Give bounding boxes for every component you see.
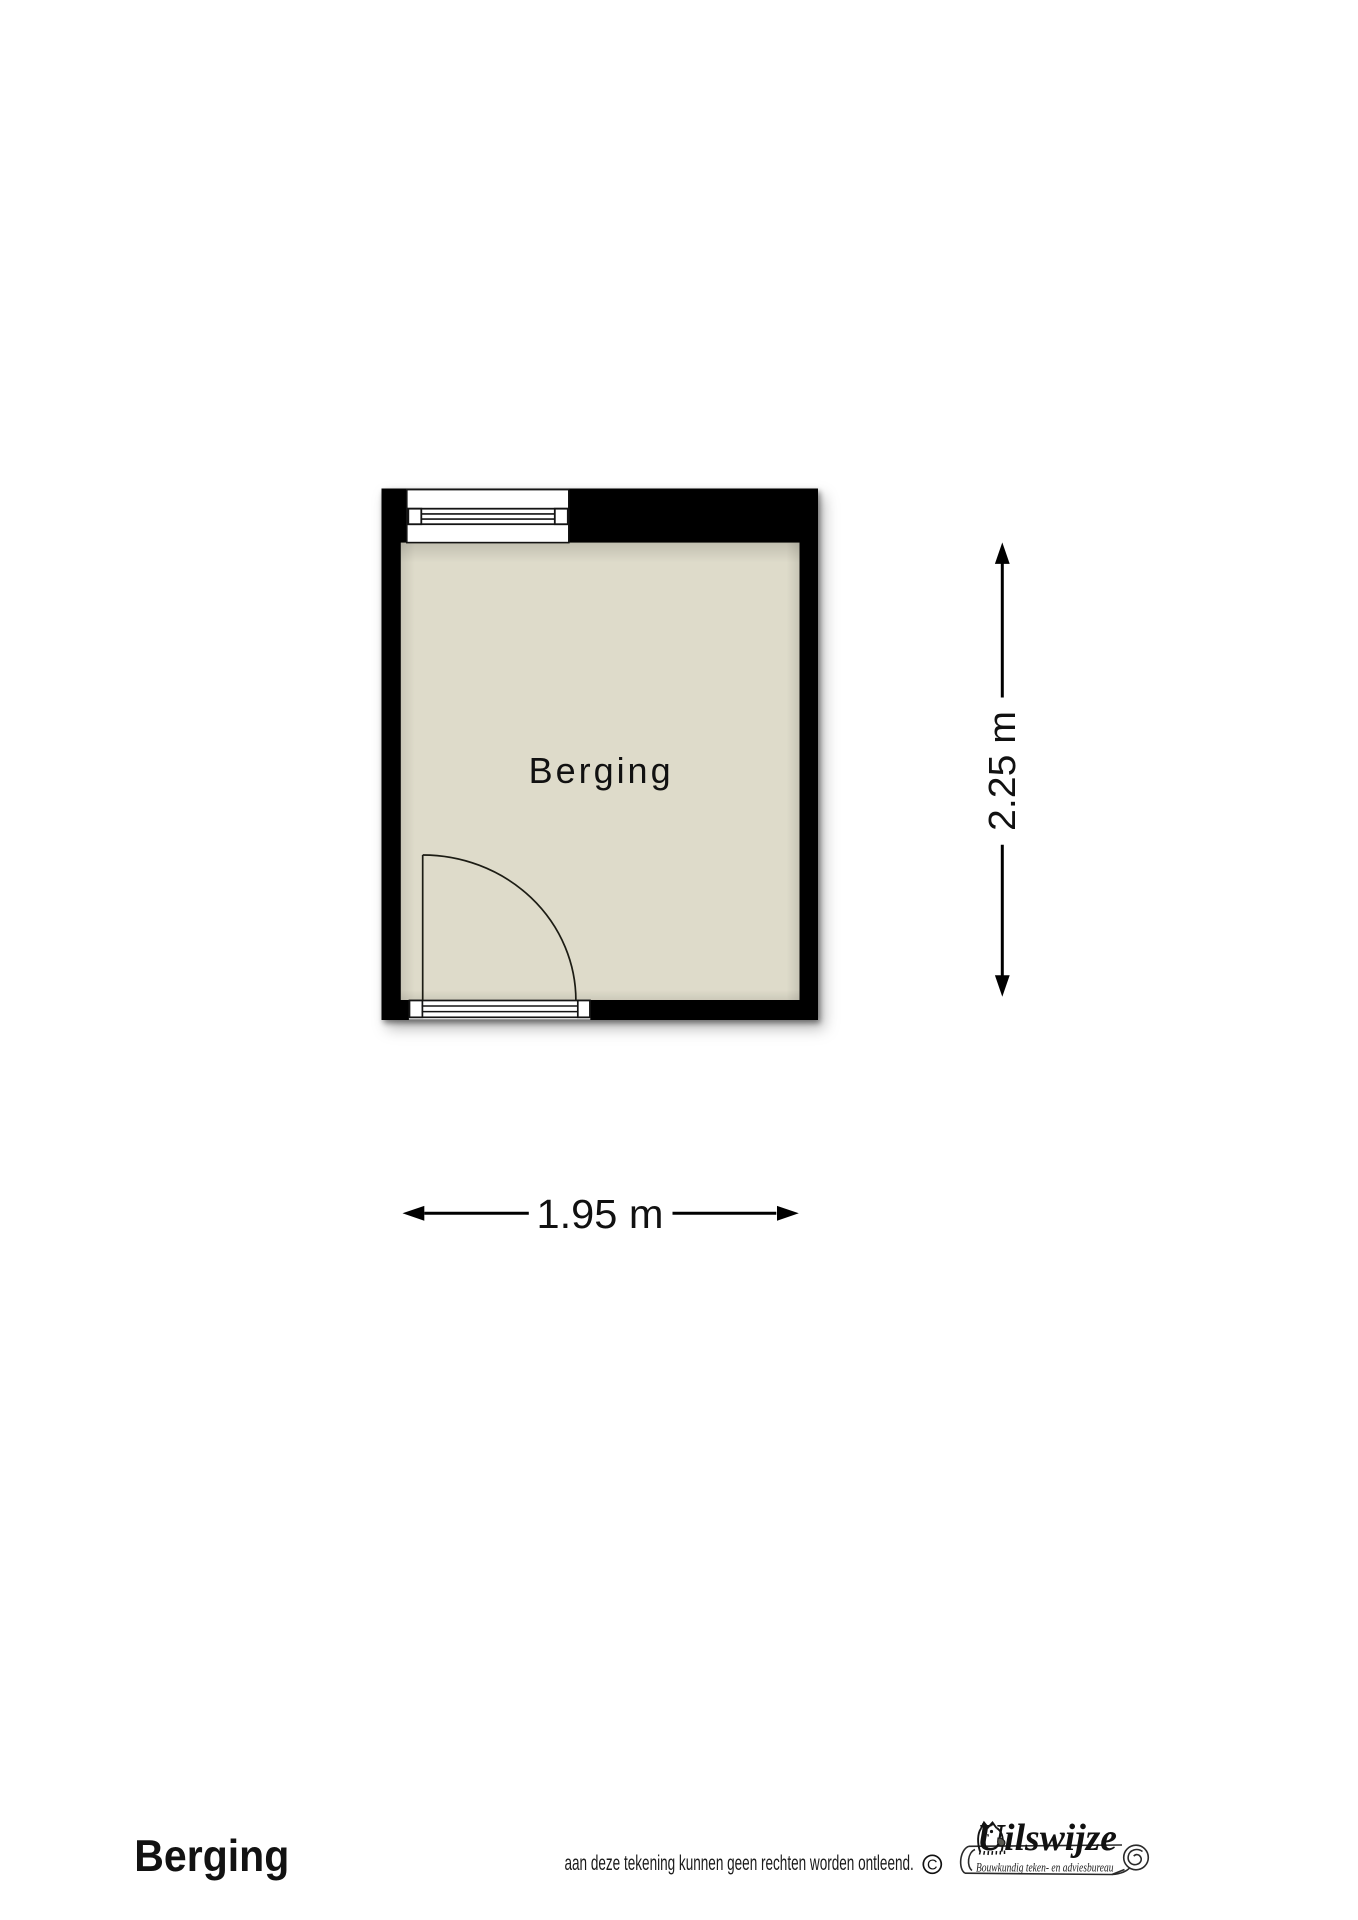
svg-text:2.25 m: 2.25 m [982,711,1024,831]
svg-text:aan deze tekening kunnen geen: aan deze tekening kunnen geen rechten wo… [565,1850,914,1875]
svg-text:C: C [927,1858,937,1874]
svg-text:Berging: Berging [134,1832,289,1881]
svg-text:Bouwkundig teken- en adviesbur: Bouwkundig teken- en adviesbureau [976,1860,1114,1875]
svg-text:1.95 m: 1.95 m [537,1191,664,1237]
